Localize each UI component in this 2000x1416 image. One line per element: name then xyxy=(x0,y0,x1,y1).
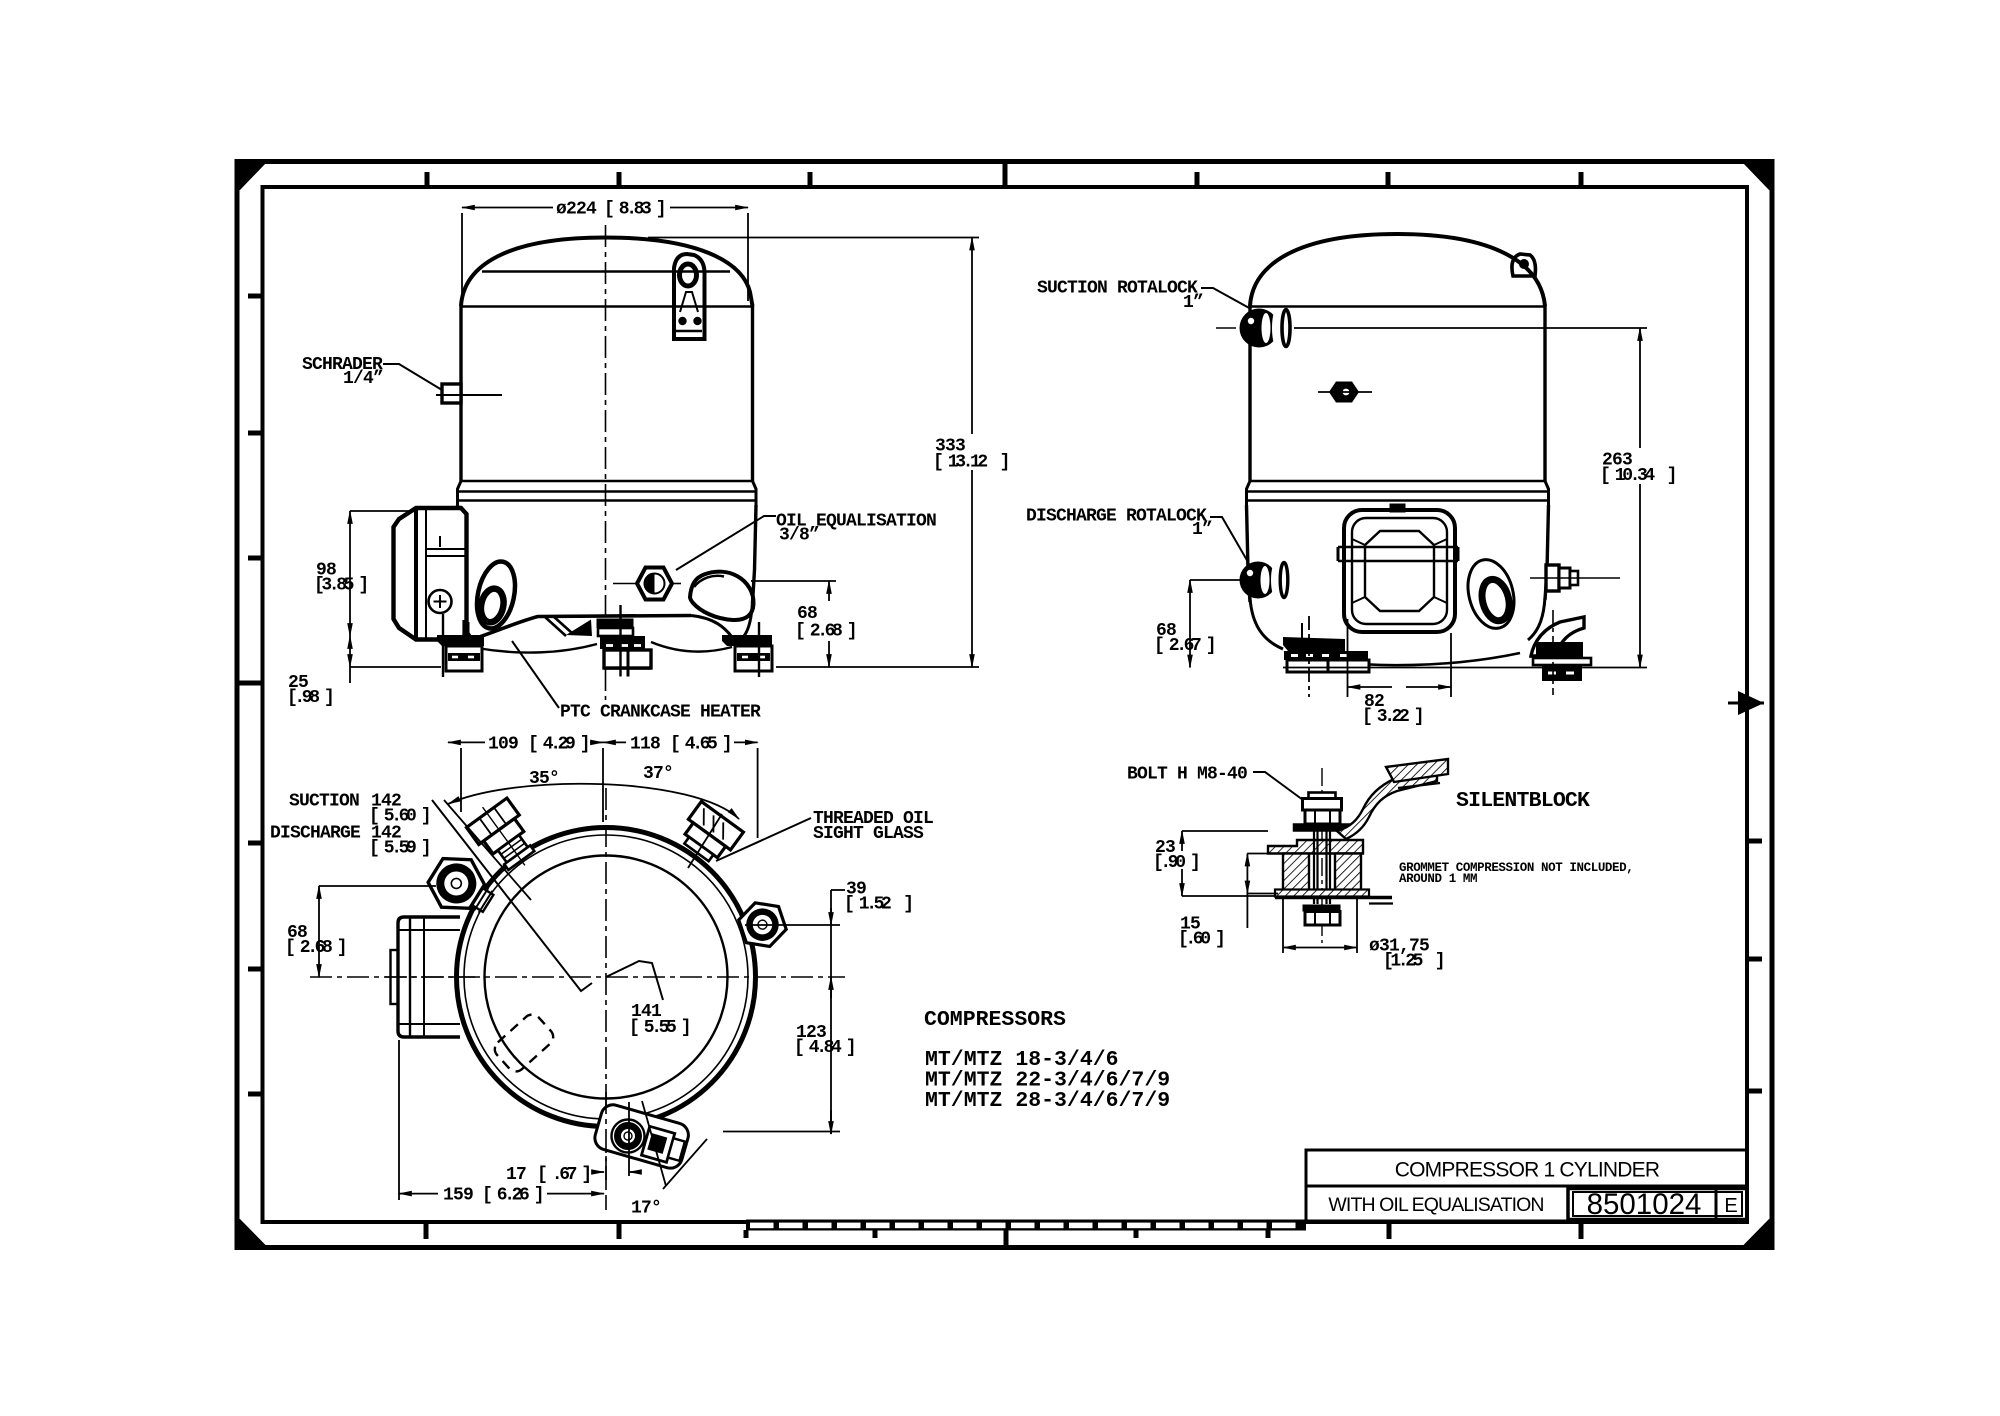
svg-text:[ 2.68 ]: [ 2.68 ] xyxy=(285,938,345,958)
svg-text:COMPRESSORS: COMPRESSORS xyxy=(924,1008,1066,1032)
svg-text:[ 2.68 ]: [ 2.68 ] xyxy=(795,622,855,642)
svg-text:WITH OIL EQUALISATION: WITH OIL EQUALISATION xyxy=(1328,1194,1543,1216)
svg-text:[1.25 ]: [1.25 ] xyxy=(1383,952,1443,972)
svg-text:BOLT H M8-40: BOLT H M8-40 xyxy=(1127,765,1247,785)
svg-text:DISCHARGE: DISCHARGE xyxy=(270,824,361,844)
svg-text:[.98 ]: [.98 ] xyxy=(287,688,332,708)
svg-text:DISCHARGE ROTALOCK: DISCHARGE ROTALOCK xyxy=(1026,507,1207,527)
svg-text:37°: 37° xyxy=(643,764,673,784)
svg-text:[3.85 ]: [3.85 ] xyxy=(314,576,366,596)
svg-text:1”: 1” xyxy=(1192,520,1212,540)
svg-text:[ 8.83 ]: [ 8.83 ] xyxy=(604,200,664,220)
svg-text:COMPRESSOR 1 CYLINDER: COMPRESSOR 1 CYLINDER xyxy=(1395,1159,1660,1182)
svg-text:[.90 ]: [.90 ] xyxy=(1153,853,1198,873)
svg-text:1”: 1” xyxy=(1183,293,1203,313)
svg-text:8501024: 8501024 xyxy=(1587,1188,1702,1221)
svg-text:1/4”: 1/4” xyxy=(343,369,383,389)
svg-text:[ 13.12 ]: [ 13.12 ] xyxy=(933,453,1008,473)
svg-text:[ 2.67 ]: [ 2.67 ] xyxy=(1154,636,1214,656)
svg-text:109: 109 xyxy=(488,735,518,755)
svg-text:[ 5.59 ]: [ 5.59 ] xyxy=(369,839,429,859)
svg-text:SUCTION ROTALOCK: SUCTION ROTALOCK xyxy=(1037,279,1198,299)
svg-text:[.60 ]: [.60 ] xyxy=(1178,930,1223,950)
svg-text:E: E xyxy=(1724,1195,1737,1217)
svg-text:[ 5.55 ]: [ 5.55 ] xyxy=(629,1018,689,1038)
svg-text:[ .67 ]: [ .67 ] xyxy=(537,1165,589,1185)
svg-text:MT/MTZ 28-3/4/6/7/9: MT/MTZ 28-3/4/6/7/9 xyxy=(925,1089,1170,1113)
svg-text:PTC CRANKCASE HEATER: PTC CRANKCASE HEATER xyxy=(560,703,761,723)
svg-text:118: 118 xyxy=(630,735,660,755)
svg-text:[ 10.34 ]: [ 10.34 ] xyxy=(1600,466,1675,486)
svg-text:159: 159 xyxy=(443,1186,473,1206)
svg-text:[ 3.22 ]: [ 3.22 ] xyxy=(1362,707,1422,727)
svg-text:[ 4.29 ]: [ 4.29 ] xyxy=(528,735,588,755)
svg-text:[ 6.26 ]: [ 6.26 ] xyxy=(482,1186,542,1206)
svg-text:[ 4.65 ]: [ 4.65 ] xyxy=(670,735,730,755)
svg-text:ø224: ø224 xyxy=(556,200,597,220)
svg-text:SILENTBLOCK: SILENTBLOCK xyxy=(1456,789,1590,813)
svg-text:17: 17 xyxy=(506,1165,526,1185)
svg-text:[ 1.52 ]: [ 1.52 ] xyxy=(844,895,911,915)
svg-text:3/8”: 3/8” xyxy=(779,526,819,546)
svg-text:35°: 35° xyxy=(529,769,559,789)
svg-text:AROUND 1 MM: AROUND 1 MM xyxy=(1399,872,1477,886)
svg-text:[ 4.84 ]: [ 4.84 ] xyxy=(794,1038,854,1058)
svg-text:17°: 17° xyxy=(631,1199,661,1219)
svg-text:SIGHT GLASS: SIGHT GLASS xyxy=(813,824,924,844)
svg-text:SUCTION: SUCTION xyxy=(289,792,359,812)
